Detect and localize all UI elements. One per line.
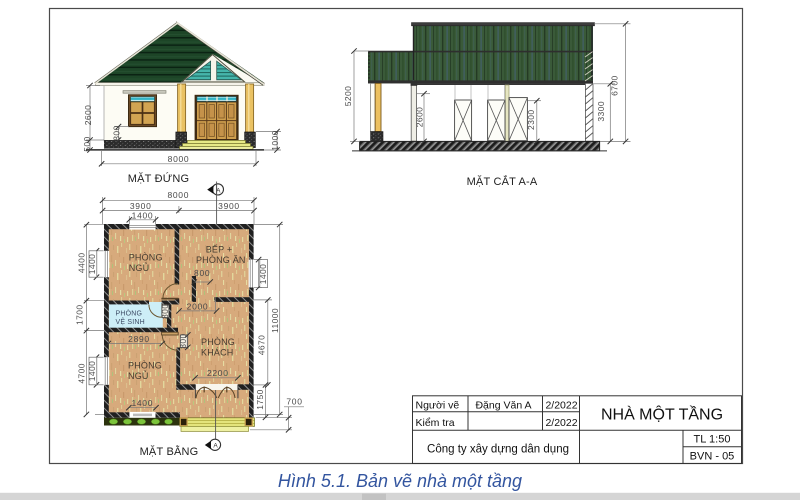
svg-text:4400: 4400 — [77, 253, 87, 274]
svg-text:1700: 1700 — [75, 305, 85, 326]
svg-text:8000: 8000 — [167, 190, 189, 200]
svg-text:2600: 2600 — [83, 105, 93, 126]
svg-text:PHÒNG: PHÒNG — [129, 252, 163, 262]
svg-text:1400: 1400 — [87, 361, 97, 382]
svg-text:KHÁCH: KHÁCH — [201, 348, 234, 358]
svg-text:PHÒNG ĂN: PHÒNG ĂN — [196, 255, 246, 265]
svg-text:2/2022: 2/2022 — [545, 399, 577, 411]
svg-text:TL 1:50: TL 1:50 — [694, 433, 731, 445]
svg-text:1400: 1400 — [258, 264, 268, 285]
svg-text:3300: 3300 — [596, 101, 606, 122]
svg-text:NGỦ: NGỦ — [129, 262, 150, 273]
svg-text:NGỦ: NGỦ — [128, 370, 149, 381]
svg-text:NHÀ MỘT TẦNG: NHÀ MỘT TẦNG — [601, 405, 723, 424]
svg-text:2200: 2200 — [207, 368, 229, 378]
svg-text:Người vẽ: Người vẽ — [416, 399, 460, 411]
svg-text:3900: 3900 — [130, 201, 152, 211]
svg-text:6700: 6700 — [610, 75, 620, 96]
svg-text:2600: 2600 — [415, 107, 425, 128]
svg-text:MẶT ĐỨNG: MẶT ĐỨNG — [128, 172, 190, 185]
svg-text:2/2022: 2/2022 — [545, 417, 577, 429]
svg-text:A: A — [213, 443, 218, 450]
svg-text:PHÒNG: PHÒNG — [116, 309, 143, 318]
svg-text:1400: 1400 — [87, 254, 97, 275]
svg-text:Kiểm tra: Kiểm tra — [416, 417, 455, 429]
svg-text:MẶT BẰNG: MẶT BẰNG — [140, 445, 199, 458]
svg-text:PHÒNG: PHÒNG — [201, 337, 235, 347]
svg-text:1000: 1000 — [270, 130, 280, 151]
svg-text:1400: 1400 — [132, 210, 154, 220]
svg-text:PHÒNG: PHÒNG — [128, 361, 162, 371]
svg-text:4670: 4670 — [257, 335, 267, 356]
svg-text:800: 800 — [111, 125, 121, 140]
svg-text:800: 800 — [160, 304, 170, 319]
svg-text:BVN - 05: BVN - 05 — [690, 450, 735, 462]
svg-text:1750: 1750 — [255, 389, 265, 410]
svg-text:2300: 2300 — [526, 109, 536, 130]
svg-text:BẾP +: BẾP + — [206, 245, 233, 255]
svg-text:2890: 2890 — [128, 334, 150, 344]
svg-text:Công ty xây dựng dân dụng: Công ty xây dựng dân dụng — [427, 443, 569, 455]
svg-text:2000: 2000 — [187, 301, 209, 311]
svg-text:1400: 1400 — [131, 398, 153, 408]
svg-text:11000: 11000 — [270, 308, 280, 333]
svg-text:5200: 5200 — [343, 86, 353, 107]
svg-text:500: 500 — [82, 136, 92, 151]
svg-text:VỆ SINH: VỆ SINH — [116, 317, 145, 326]
svg-text:4700: 4700 — [77, 363, 87, 384]
svg-text:Hình 5.1. Bản vẽ nhà một tầng: Hình 5.1. Bản vẽ nhà một tầng — [278, 471, 522, 491]
svg-text:Đặng Văn A: Đặng Văn A — [475, 399, 531, 411]
svg-text:800: 800 — [194, 268, 210, 278]
svg-text:8000: 8000 — [168, 154, 190, 164]
svg-text:3900: 3900 — [218, 201, 240, 211]
svg-text:MẶT CẮT A-A: MẶT CẮT A-A — [467, 175, 538, 188]
svg-text:700: 700 — [286, 396, 302, 406]
